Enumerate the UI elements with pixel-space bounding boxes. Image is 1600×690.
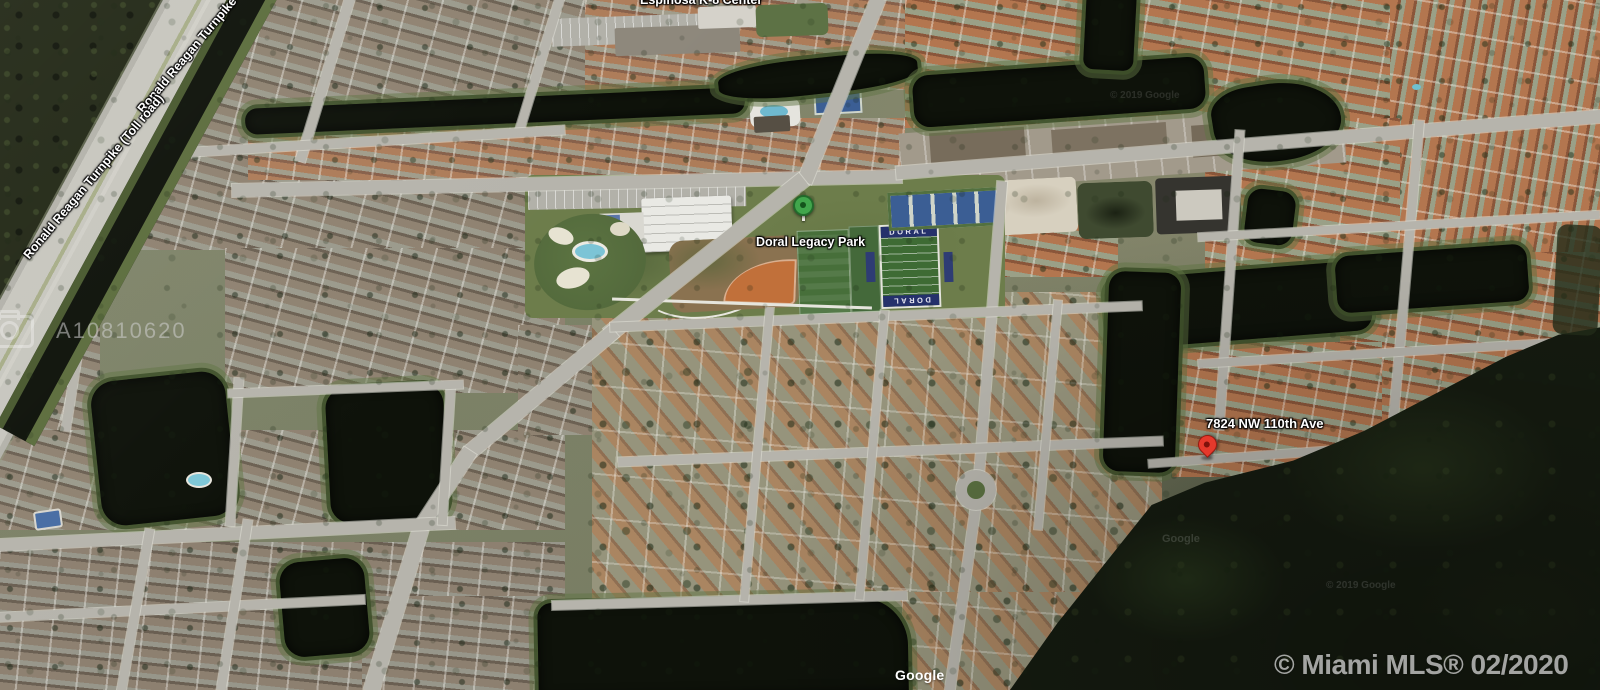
end-zone-label: DORAL (891, 295, 930, 305)
green-map-pin-head (793, 195, 814, 216)
green-map-pin (793, 195, 815, 231)
end-zone-bottom: DORAL (883, 294, 939, 307)
clubhouse-roof (754, 115, 791, 133)
school-building (698, 5, 757, 29)
satellite-map: DORAL DORAL (0, 0, 1600, 690)
red-map-pin-body (1194, 431, 1221, 458)
bleachers (865, 252, 875, 282)
construction-building-roof (1175, 189, 1222, 221)
google-logo: Google (895, 667, 944, 683)
school-label: Espinosa K-8 Center (640, 0, 762, 7)
tennis-courts (887, 187, 1003, 231)
camera-icon (0, 310, 32, 344)
bleachers (943, 252, 953, 282)
roundabout-island (967, 481, 985, 499)
community-pool (572, 241, 608, 262)
google-copyright-faint: © 2019 Google (1326, 580, 1396, 591)
address-label: 7824 NW 110th Ave (1206, 416, 1324, 431)
mls-brand-watermark: © Miami MLS® 02/2020 (1274, 649, 1568, 681)
football-field-midfield (881, 236, 939, 296)
school-field (755, 3, 828, 37)
lake (1083, 0, 1137, 71)
football-field: DORAL DORAL (879, 223, 942, 309)
backyard-pool (1412, 84, 1421, 90)
google-watermark-faint: Google (1162, 533, 1200, 545)
playground-court (33, 508, 63, 531)
construction-pond (1077, 181, 1154, 240)
mls-number-watermark: A10810620 (56, 318, 187, 344)
backyard-pool (186, 472, 212, 488)
red-map-pin (1196, 432, 1218, 462)
sand-area (610, 222, 630, 236)
residential-block (225, 248, 565, 393)
lake (537, 597, 909, 690)
park-label: Doral Legacy Park (756, 235, 865, 249)
google-copyright-faint: © 2019 Google (1110, 90, 1180, 101)
lake (89, 369, 238, 527)
tree-line (1552, 224, 1600, 336)
school-building (615, 24, 741, 56)
